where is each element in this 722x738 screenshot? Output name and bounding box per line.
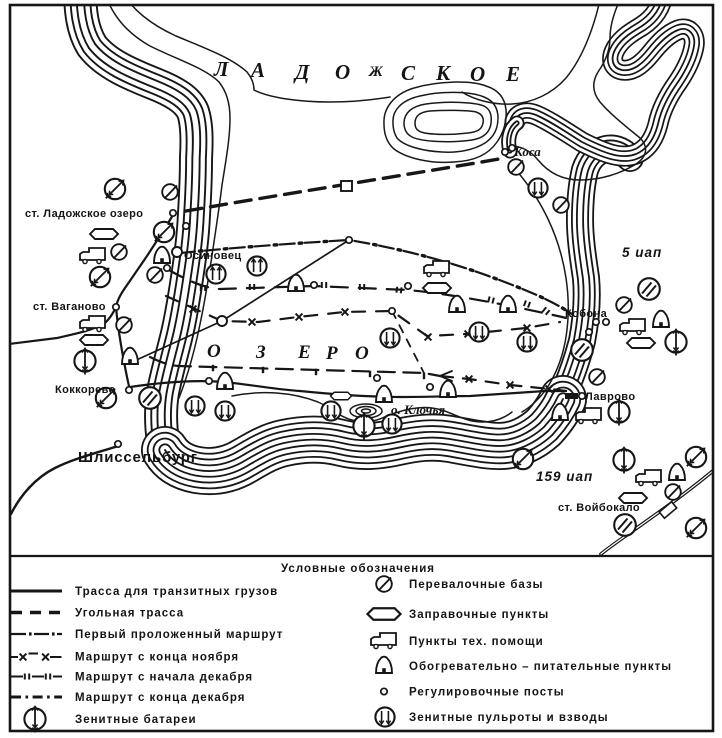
svg-text:Д: Д — [293, 60, 310, 84]
svg-text:ст. Войбокало: ст. Войбокало — [558, 502, 640, 514]
svg-text:Перевалочные базы: Перевалочные базы — [409, 579, 544, 591]
svg-text:Угольная трасса: Угольная трасса — [75, 608, 184, 620]
svg-text:Лаврово: Лаврово — [585, 391, 635, 403]
svg-text:Кобона: Кобона — [565, 308, 608, 320]
svg-text:О: О — [335, 60, 350, 84]
svg-text:Трасса для транзитных грузов: Трасса для транзитных грузов — [75, 586, 278, 598]
svg-text:Заправочные пункты: Заправочные пункты — [409, 609, 549, 621]
svg-text:С: С — [401, 61, 416, 85]
svg-text:о. Клочья: о. Клочья — [391, 402, 445, 417]
svg-text:Обогревательно – питательные п: Обогревательно – питательные пункты — [409, 661, 672, 673]
svg-text:О: О — [470, 62, 485, 86]
svg-text:Первый проложенный маршрут: Первый проложенный маршрут — [75, 629, 283, 641]
svg-text:Шлиссельбург: Шлиссельбург — [78, 449, 198, 466]
svg-text:5 иап: 5 иап — [622, 245, 662, 260]
svg-text:З: З — [255, 342, 266, 363]
svg-text:Маршрут с начала декабря: Маршрут с начала декабря — [75, 672, 253, 684]
svg-text:Р: Р — [325, 343, 338, 364]
svg-text:159 иап: 159 иап — [536, 469, 593, 484]
svg-text:Маршрут с конца ноября: Маршрут с конца ноября — [75, 652, 239, 664]
svg-text:Регулировочные посты: Регулировочные посты — [409, 687, 565, 699]
svg-text:Условные обозначения: Условные обозначения — [281, 563, 435, 575]
svg-text:Ж: Ж — [368, 64, 384, 80]
svg-text:Зенитные батареи: Зенитные батареи — [75, 714, 197, 726]
svg-text:Пункты тех. помощи: Пункты тех. помощи — [409, 636, 544, 648]
svg-text:Коккорево: Коккорево — [55, 384, 116, 396]
svg-text:Е: Е — [505, 62, 520, 86]
svg-text:Е: Е — [297, 342, 311, 363]
svg-text:Л: Л — [213, 57, 229, 81]
svg-text:Зенитные пульроты и взводы: Зенитные пульроты и взводы — [409, 712, 609, 724]
svg-text:Осиновец: Осиновец — [184, 250, 242, 262]
svg-text:ст. Ладожское озеро: ст. Ладожское озеро — [25, 208, 143, 220]
svg-text:Маршрут с конца декабря: Маршрут с конца декабря — [75, 692, 245, 704]
svg-text:Коса: Коса — [513, 144, 541, 159]
svg-text:К: К — [435, 61, 452, 85]
svg-text:ст. Ваганово: ст. Ваганово — [33, 301, 106, 313]
svg-text:А: А — [249, 58, 265, 82]
svg-text:О: О — [355, 343, 369, 364]
svg-text:О: О — [207, 341, 221, 362]
